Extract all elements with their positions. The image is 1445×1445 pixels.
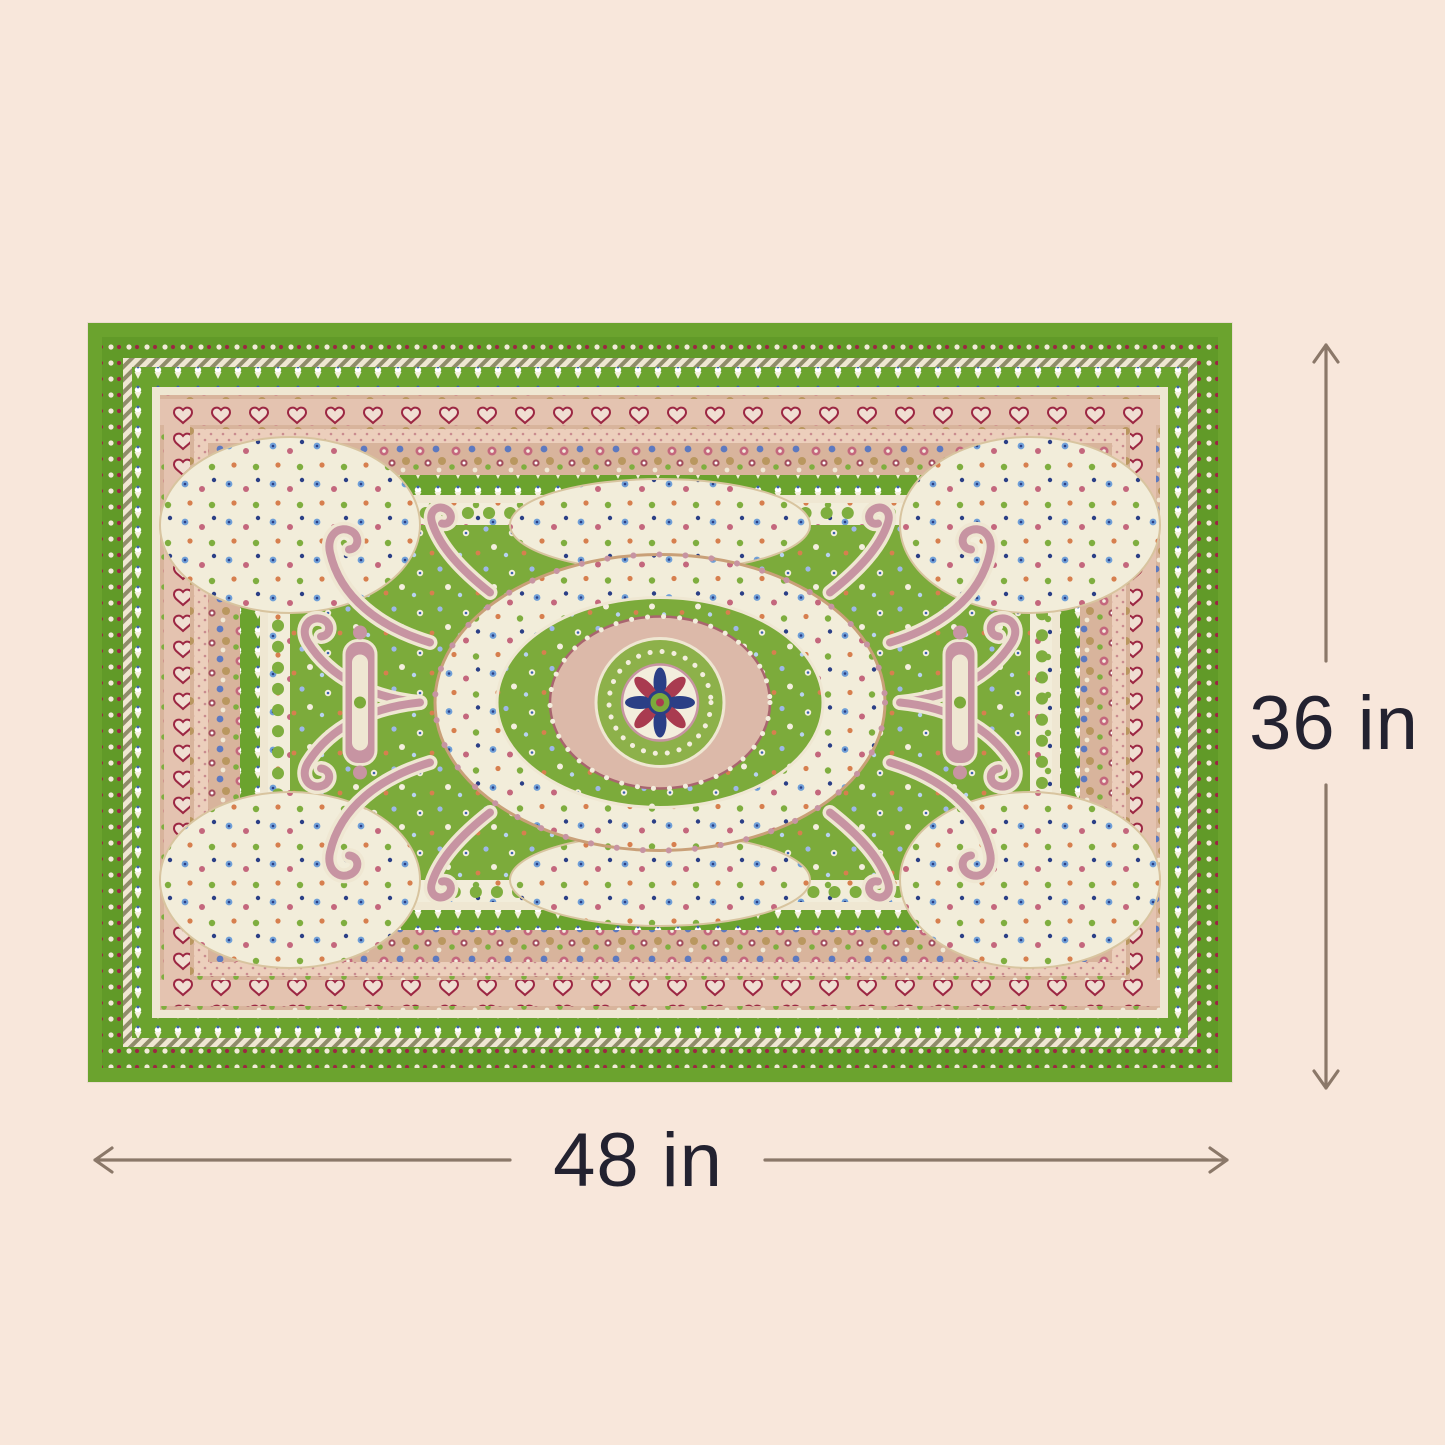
rug-image <box>88 323 1232 1082</box>
width-label: 48 in <box>553 1123 723 1199</box>
height-label: 36 in <box>1249 686 1419 762</box>
product-dimension-diagram: 36 in 48 in <box>0 0 1445 1445</box>
rug-artwork <box>88 323 1232 1082</box>
